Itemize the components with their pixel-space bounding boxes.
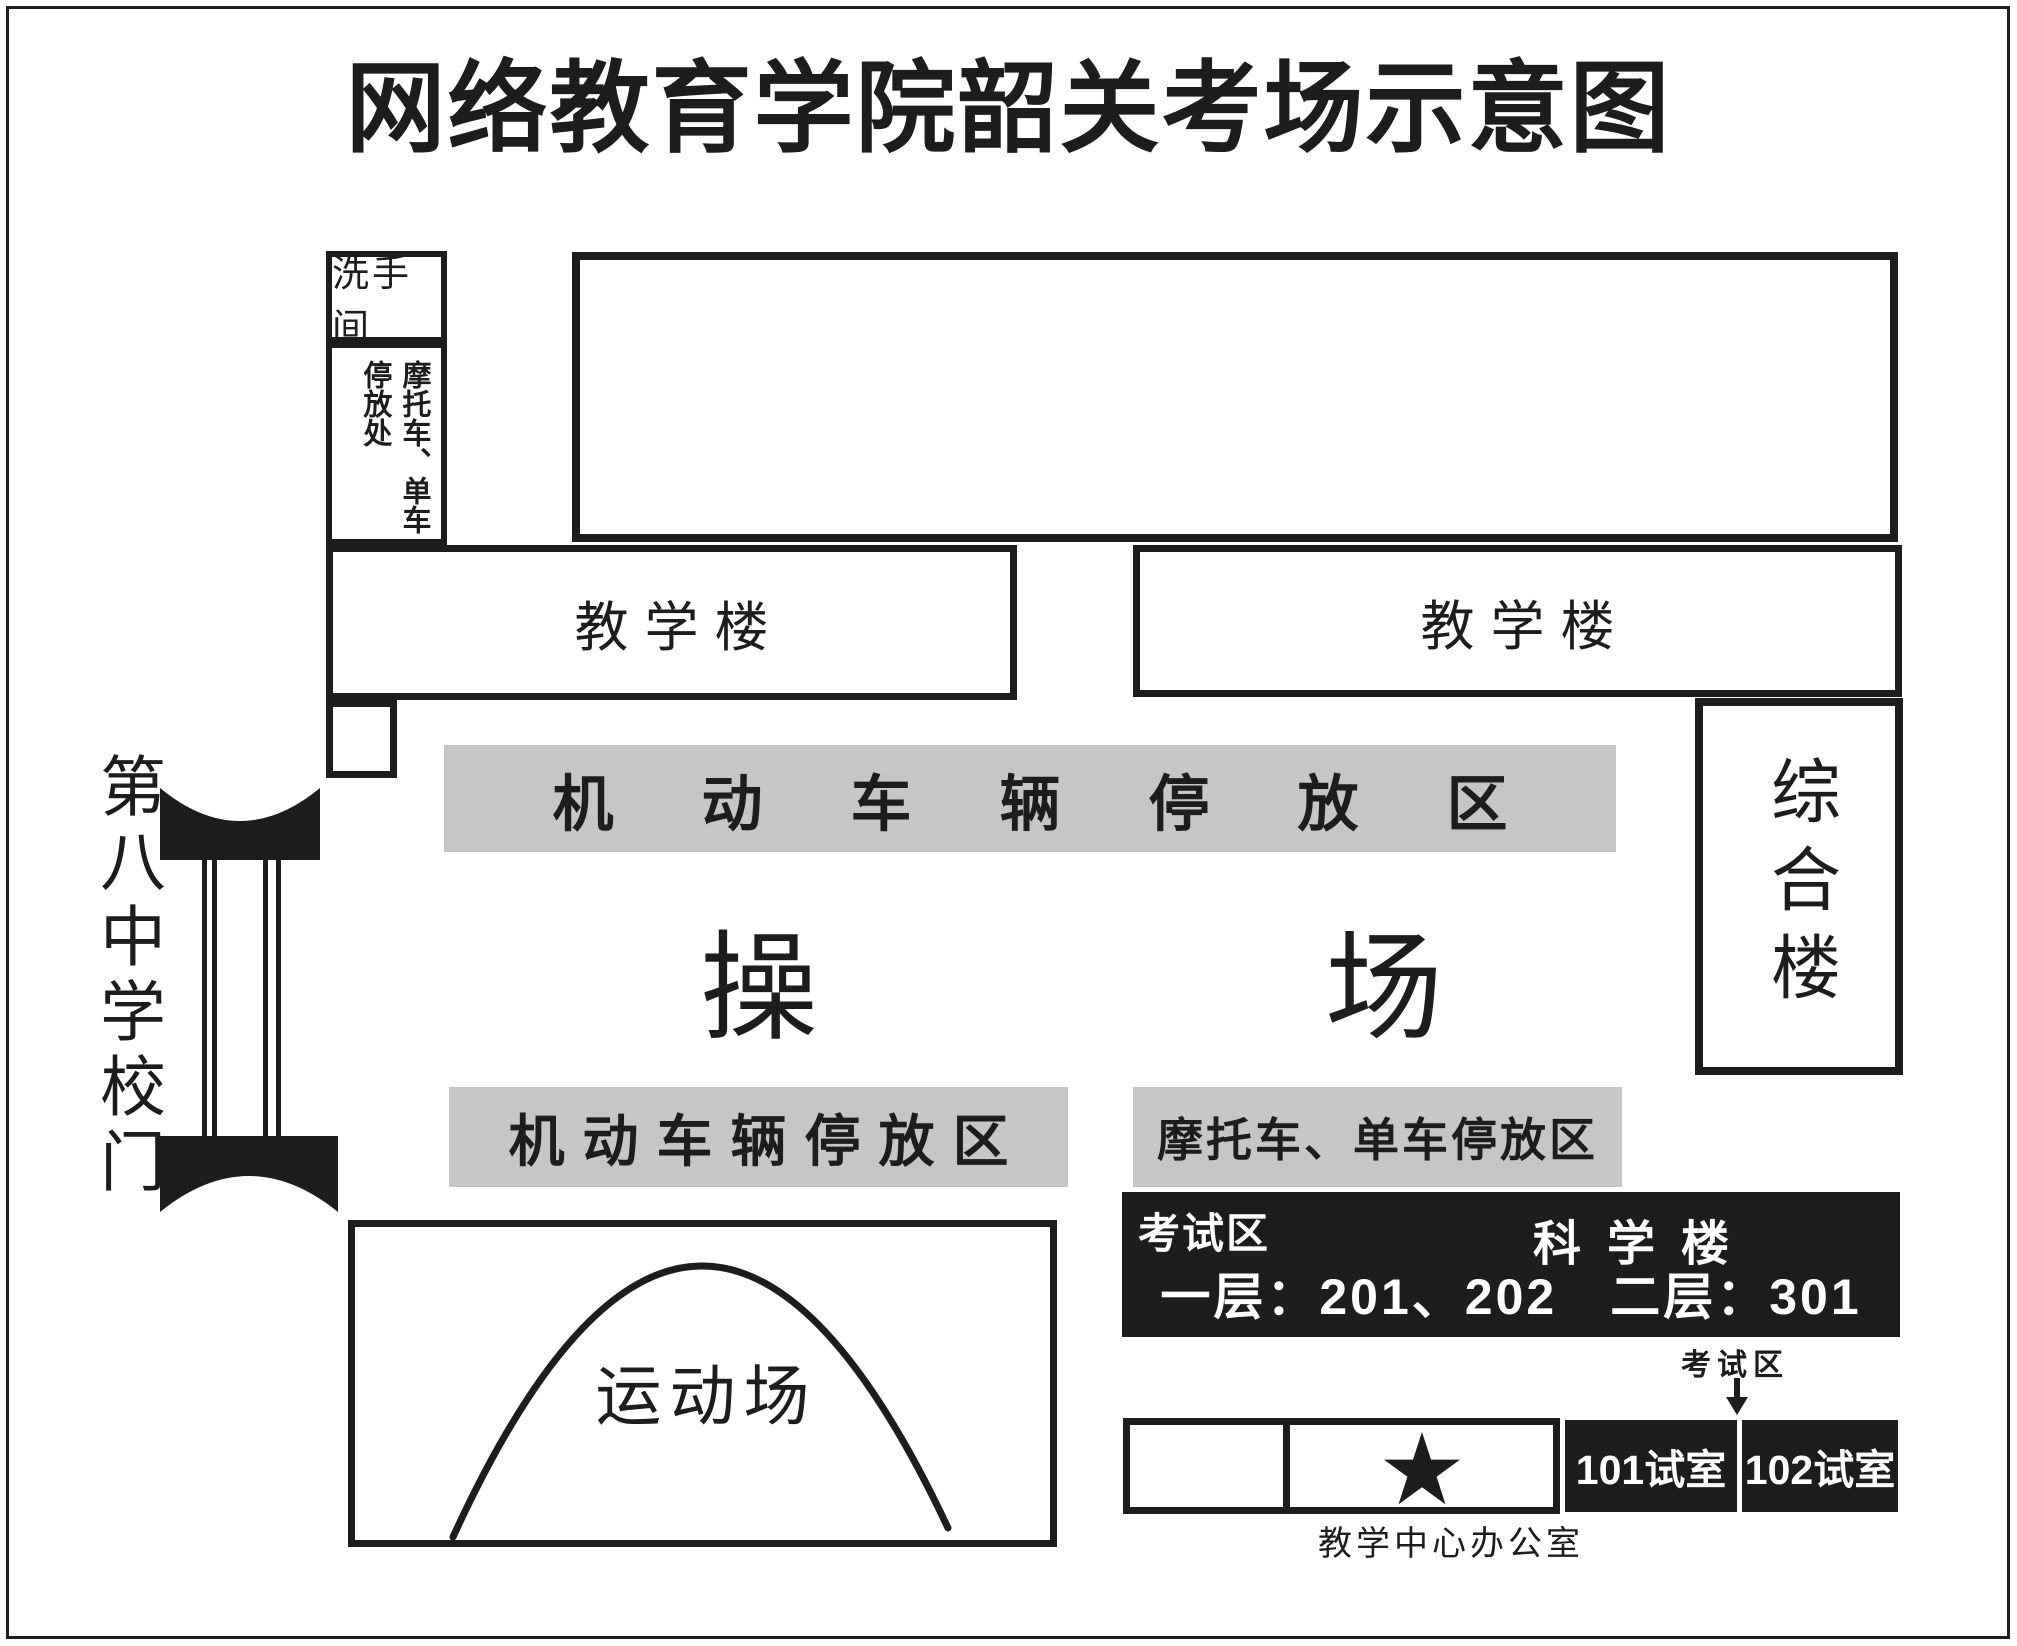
exam-room-101-box: 101试室 bbox=[1565, 1420, 1737, 1512]
teaching-building-right-label: 教学楼 bbox=[1421, 582, 1631, 661]
teaching-building-right-box: 教学楼 bbox=[1133, 545, 1902, 697]
playground-char-chang: 场 bbox=[1325, 925, 1443, 1055]
page-title: 网络教育学院韶关考场示意图 bbox=[0, 42, 2017, 177]
exam-room-102-label: 102试室 bbox=[1745, 1436, 1895, 1496]
restroom-label: 洗手间 bbox=[332, 243, 441, 351]
star-icon bbox=[1374, 1428, 1470, 1518]
moto-bike-parking-zone-label: 摩托车、单车停放区 bbox=[1157, 1104, 1598, 1170]
teaching-building-left-box: 教学楼 bbox=[326, 545, 1017, 700]
complex-building-label: 综合楼 bbox=[1749, 755, 1850, 1019]
science-building-box: 考试区 科学楼 一层：201、202 二层：301 bbox=[1122, 1192, 1900, 1337]
exam-zone-badge: 考试区 bbox=[1138, 1200, 1270, 1261]
annex-small-box bbox=[326, 700, 397, 778]
complex-building-box: 综合楼 bbox=[1695, 698, 1903, 1075]
motor-parking-zone-bottom-bar: 机动车辆停放区 bbox=[449, 1087, 1068, 1187]
sports-field-box: 运动场 bbox=[348, 1220, 1057, 1547]
exam-rooms-row: 一层：201、202 二层：301 bbox=[1122, 1257, 1900, 1329]
restroom-box: 洗手间 bbox=[326, 251, 447, 343]
moto-bike-parking-box: 摩托车、单车 停放处 bbox=[326, 342, 447, 545]
down-arrow-icon bbox=[1724, 1378, 1750, 1416]
exam-room-102-box: 102试室 bbox=[1742, 1420, 1898, 1512]
teaching-building-left-label: 教学楼 bbox=[575, 583, 785, 662]
exam-room-101-label: 101试室 bbox=[1576, 1436, 1726, 1496]
office-box bbox=[1123, 1418, 1290, 1514]
moto-bike-parking-zone-bar: 摩托车、单车停放区 bbox=[1133, 1087, 1622, 1187]
exam-rooms-label: 一层：201、202 二层：301 bbox=[1160, 1269, 1861, 1325]
playground-char-cao: 操 bbox=[700, 925, 818, 1055]
exam-venue-map: 网络教育学院韶关考场示意图 洗手间 摩托车、单车 停放处 教学楼 教学楼 综合楼… bbox=[0, 0, 2017, 1646]
top-building-box bbox=[572, 252, 1898, 542]
sports-field-label: 运动场 bbox=[355, 1343, 1058, 1439]
moto-bike-parking-label: 摩托车、单车 停放处 bbox=[355, 360, 433, 538]
star-box bbox=[1283, 1418, 1560, 1514]
teaching-center-office-label: 教学中心办公室 bbox=[1290, 1516, 1612, 1565]
motor-parking-zone-bottom-label: 机动车辆停放区 bbox=[509, 1097, 1027, 1178]
motor-parking-zone-top-bar: 机动车辆停放区 bbox=[444, 745, 1616, 852]
motor-parking-zone-top-label: 机动车辆停放区 bbox=[552, 754, 1595, 843]
school-gate-icon bbox=[160, 788, 338, 1212]
